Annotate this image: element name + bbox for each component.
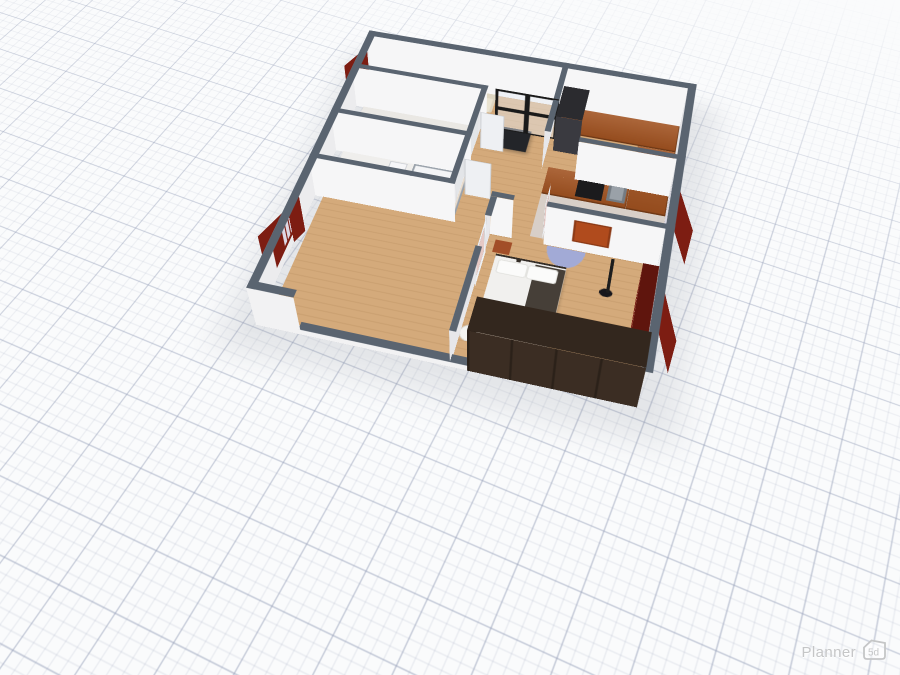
planner5d-logo-badge: 5d (861, 638, 888, 667)
planner5d-watermark: Planner 5d (801, 638, 888, 667)
bath-door-leaf[interactable] (464, 159, 491, 200)
house-icon: 5d (861, 638, 888, 662)
planner-3d-viewport[interactable]: Planner 5d (0, 0, 900, 675)
scene-3d (0, 0, 900, 675)
apartment-plan (256, 70, 688, 409)
badge-text: 5d (868, 648, 879, 659)
watermark-text: Planner (801, 644, 856, 661)
wall-picture[interactable] (572, 220, 612, 248)
storage-door-leaf[interactable] (480, 112, 505, 153)
